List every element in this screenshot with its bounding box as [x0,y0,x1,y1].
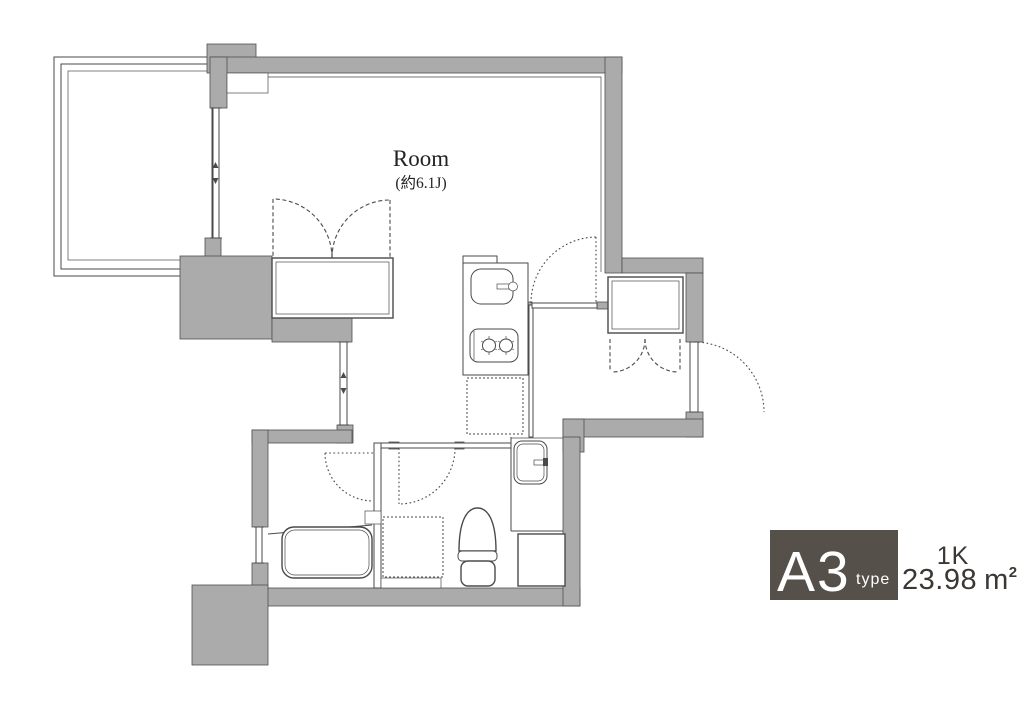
room-door-swing [531,237,597,303]
kitchen-unit [463,256,528,434]
room-size-label: (約6.1J) [395,174,446,192]
room [227,73,601,272]
floor-plan-svg: Room (約6.1J) A 3 type 1K 23.98m2 [0,0,1024,725]
type-word: type [856,571,890,588]
entrance-door [690,342,764,412]
room-closet [272,199,393,318]
legend: A 3 type 1K 23.98m2 [770,530,1018,604]
bathroom-door-swing [325,453,373,501]
area-superscript: 2 [1009,564,1018,581]
bathtub [282,527,372,578]
bathroom-window [254,527,264,563]
hall-partition [529,237,597,437]
washing-machine-space [381,517,443,588]
type-digit: 3 [817,540,851,604]
balcony [54,57,213,276]
floor-plan-page: Room (約6.1J) A 3 type 1K 23.98m2 [0,0,1024,725]
area-text: 23.98m2 [902,564,1018,596]
balcony-window [210,108,222,238]
type-letter: A [777,540,817,604]
shoe-closet [608,277,683,372]
powder-door-swing [399,448,455,504]
room-label: Room [393,146,449,171]
kitchen-sink [471,269,518,304]
washbasin [514,441,548,484]
stove [470,329,518,362]
bathroom [268,453,373,578]
kitchen-window [338,342,349,425]
area-unit: m [984,564,1009,596]
storage-closet [518,534,565,586]
refrigerator-space [467,378,523,434]
walls [180,44,703,665]
area-value: 23.98 [902,564,977,596]
toilet [458,508,497,586]
powder-room [365,437,565,588]
